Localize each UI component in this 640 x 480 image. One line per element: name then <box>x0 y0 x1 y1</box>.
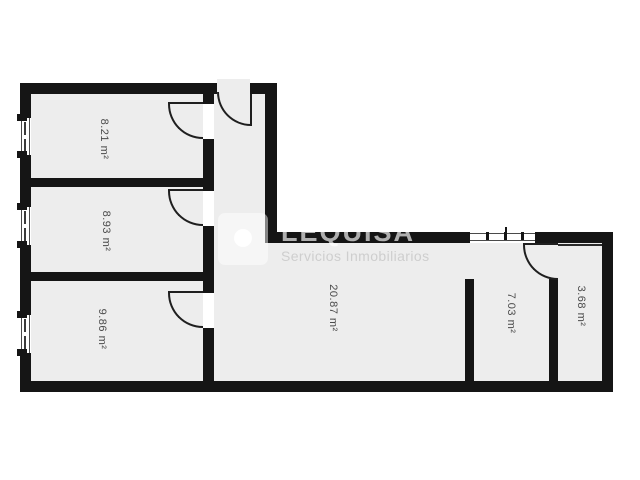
wall-between-right-rooms <box>549 279 558 381</box>
window-left-3-glass-a <box>24 319 26 332</box>
brand-logo <box>218 213 268 265</box>
window-top-mullion-1 <box>486 232 489 240</box>
wall-divider-seg4 <box>203 328 214 381</box>
window-left-1-tab-bottom <box>17 151 27 158</box>
window-left-2-glass-b <box>24 228 26 241</box>
wall-between-room1-room2 <box>31 178 214 187</box>
room-area-label-4: 20.87 m² <box>327 284 339 331</box>
window-left-3-tab-top <box>17 311 27 318</box>
window-left-2-inner-line <box>29 207 30 245</box>
brand-subtitle: Servicios Inmobiliarios <box>281 248 429 264</box>
wall-between-room2-room3 <box>31 272 214 281</box>
window-left-1-tab-top <box>17 114 27 121</box>
lintel-far-right-room <box>558 244 602 246</box>
wall-partial-main-room <box>465 279 474 381</box>
window-left-1-outer-line <box>21 118 22 155</box>
window-left-3-glass-b <box>24 336 26 349</box>
window-top-outer-line <box>470 233 535 234</box>
window-left-2-outer-line <box>21 207 22 245</box>
window-left-3-inner-line <box>29 315 30 353</box>
window-left-1-glass-b <box>24 139 26 151</box>
floor-plan-image: 8.21 m² 8.93 m² 9.86 m² 20.87 m² 7.03 m²… <box>0 0 640 480</box>
window-top-center-tick <box>505 227 507 232</box>
window-left-1-inner-line <box>29 118 30 155</box>
window-top-inner-line <box>470 240 535 241</box>
room-area-label-3: 9.86 m² <box>96 309 108 350</box>
window-left-2-glass-a <box>24 211 26 224</box>
window-top-mullion-2 <box>504 232 507 240</box>
room-area-label-2: 8.93 m² <box>100 211 112 252</box>
window-top-mullion-3 <box>521 232 524 240</box>
wall-top-left-segment <box>20 83 217 94</box>
window-left-3-outer-line <box>21 315 22 353</box>
logo-circle-icon <box>234 229 252 247</box>
wall-divider-seg1 <box>203 94 214 104</box>
window-left-1-glass-a <box>24 122 26 135</box>
window-left-2-tab-bottom <box>17 241 27 248</box>
room-area-label-6: 3.68 m² <box>575 286 587 327</box>
room-area-label-5: 7.03 m² <box>505 293 517 334</box>
room-area-label-1: 8.21 m² <box>98 119 110 160</box>
brand-name: LEQUISA <box>281 217 415 248</box>
floor-left-rooms <box>31 94 203 381</box>
wall-divider-seg3 <box>203 226 214 293</box>
wall-bottom-exterior <box>20 381 613 392</box>
window-left-3-tab-bottom <box>17 349 27 356</box>
wall-right-exterior <box>602 232 613 392</box>
window-left-2-tab-top <box>17 203 27 210</box>
